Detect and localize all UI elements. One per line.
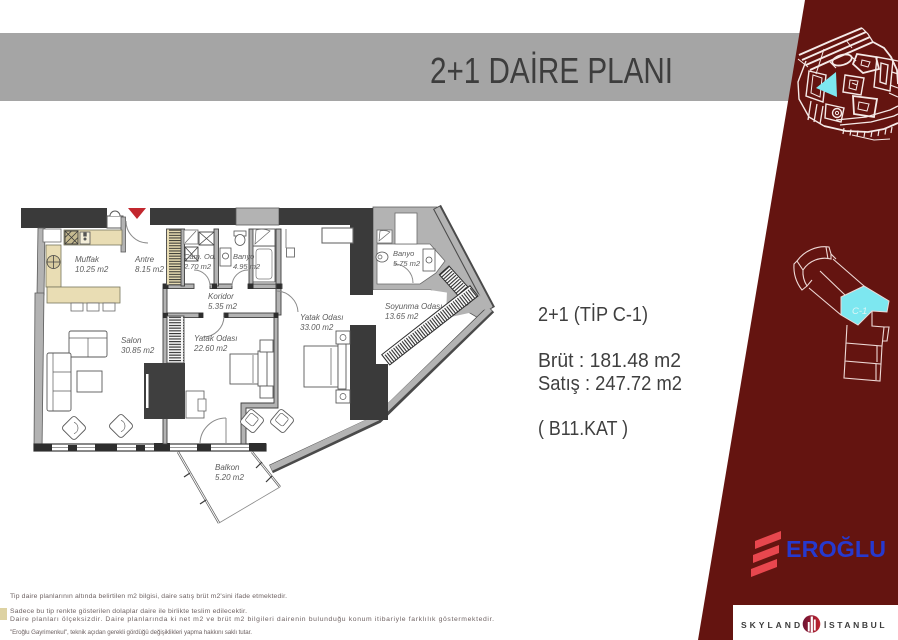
svg-text:Antre: Antre (134, 255, 155, 264)
svg-text:10.25 m2: 10.25 m2 (75, 265, 109, 274)
svg-text:33.00 m2: 33.00 m2 (300, 323, 334, 332)
svg-text:13.65 m2: 13.65 m2 (385, 312, 419, 321)
svg-text:5.35 m2: 5.35 m2 (208, 302, 237, 311)
svg-text:5.20 m2: 5.20 m2 (215, 473, 244, 482)
svg-text:Daire planları ölçeksizdir. Da: Daire planları ölçeksizdir. Daire planla… (10, 616, 494, 623)
svg-text:5.75 m2: 5.75 m2 (393, 259, 421, 268)
svg-text:Banyo: Banyo (233, 252, 254, 261)
svg-text:Muffak: Muffak (75, 255, 100, 264)
svg-text:Salon: Salon (121, 336, 142, 345)
svg-text:Sadece bu tip renkte gösterile: Sadece bu tip renkte gösterilen dolaplar… (10, 608, 247, 615)
svg-text:İSTANBUL: İSTANBUL (824, 620, 887, 630)
svg-text:EROĞLU: EROĞLU (786, 535, 886, 562)
svg-text:Balkon: Balkon (215, 463, 240, 472)
svg-text:Çam. Od.: Çam. Od. (184, 252, 216, 261)
svg-text:30.85 m2: 30.85 m2 (121, 346, 155, 355)
svg-text:"Eroğlu Gayrimenkul", teknik a: "Eroğlu Gayrimenkul", teknik açıdan gere… (10, 629, 252, 636)
svg-text:8.15 m2: 8.15 m2 (135, 265, 164, 274)
svg-text:Satış : 247.72 m2: Satış : 247.72 m2 (538, 372, 682, 395)
svg-text:Koridor: Koridor (208, 292, 234, 301)
svg-text:( B11.KAT ): ( B11.KAT ) (538, 417, 628, 440)
svg-text:2+1 DAİRE PLANI: 2+1 DAİRE PLANI (430, 50, 673, 91)
svg-text:Yatak Odası: Yatak Odası (194, 334, 237, 343)
svg-text:Brüt : 181.48 m2: Brüt : 181.48 m2 (538, 349, 681, 372)
svg-text:2.70 m2: 2.70 m2 (183, 262, 212, 271)
svg-text:Banyo: Banyo (393, 249, 414, 258)
svg-text:SKYLAND: SKYLAND (741, 620, 803, 630)
svg-text:2+1 (TİP C-1): 2+1 (TİP C-1) (538, 303, 648, 326)
svg-text:Yatak Odası: Yatak Odası (300, 313, 343, 322)
svg-text:22.60 m2: 22.60 m2 (193, 344, 228, 353)
svg-text:Soyunma Odası: Soyunma Odası (385, 302, 442, 311)
svg-text:C-1: C-1 (852, 306, 867, 317)
svg-text:4.95 m2: 4.95 m2 (233, 262, 261, 271)
svg-text:Tip daire planlarının altında: Tip daire planlarının altında belirtilen… (10, 593, 287, 600)
